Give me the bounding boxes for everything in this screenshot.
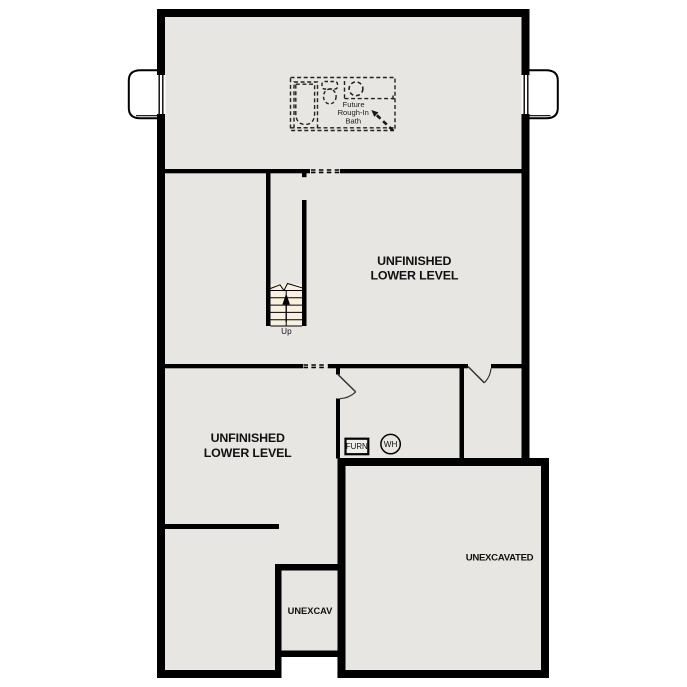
svg-text:LOWER LEVEL: LOWER LEVEL bbox=[204, 446, 292, 460]
svg-text:UNEXCAVATED: UNEXCAVATED bbox=[466, 552, 534, 563]
svg-text:LOWER LEVEL: LOWER LEVEL bbox=[370, 268, 458, 282]
svg-text:UNFINISHED: UNFINISHED bbox=[377, 254, 451, 268]
svg-text:UNFINISHED: UNFINISHED bbox=[211, 431, 285, 445]
svg-text:Up: Up bbox=[281, 327, 292, 336]
svg-text:FURN: FURN bbox=[346, 442, 368, 451]
svg-text:Bath: Bath bbox=[345, 117, 361, 126]
svg-text:WH: WH bbox=[384, 440, 398, 449]
svg-text:UNEXCAV: UNEXCAV bbox=[288, 606, 334, 616]
